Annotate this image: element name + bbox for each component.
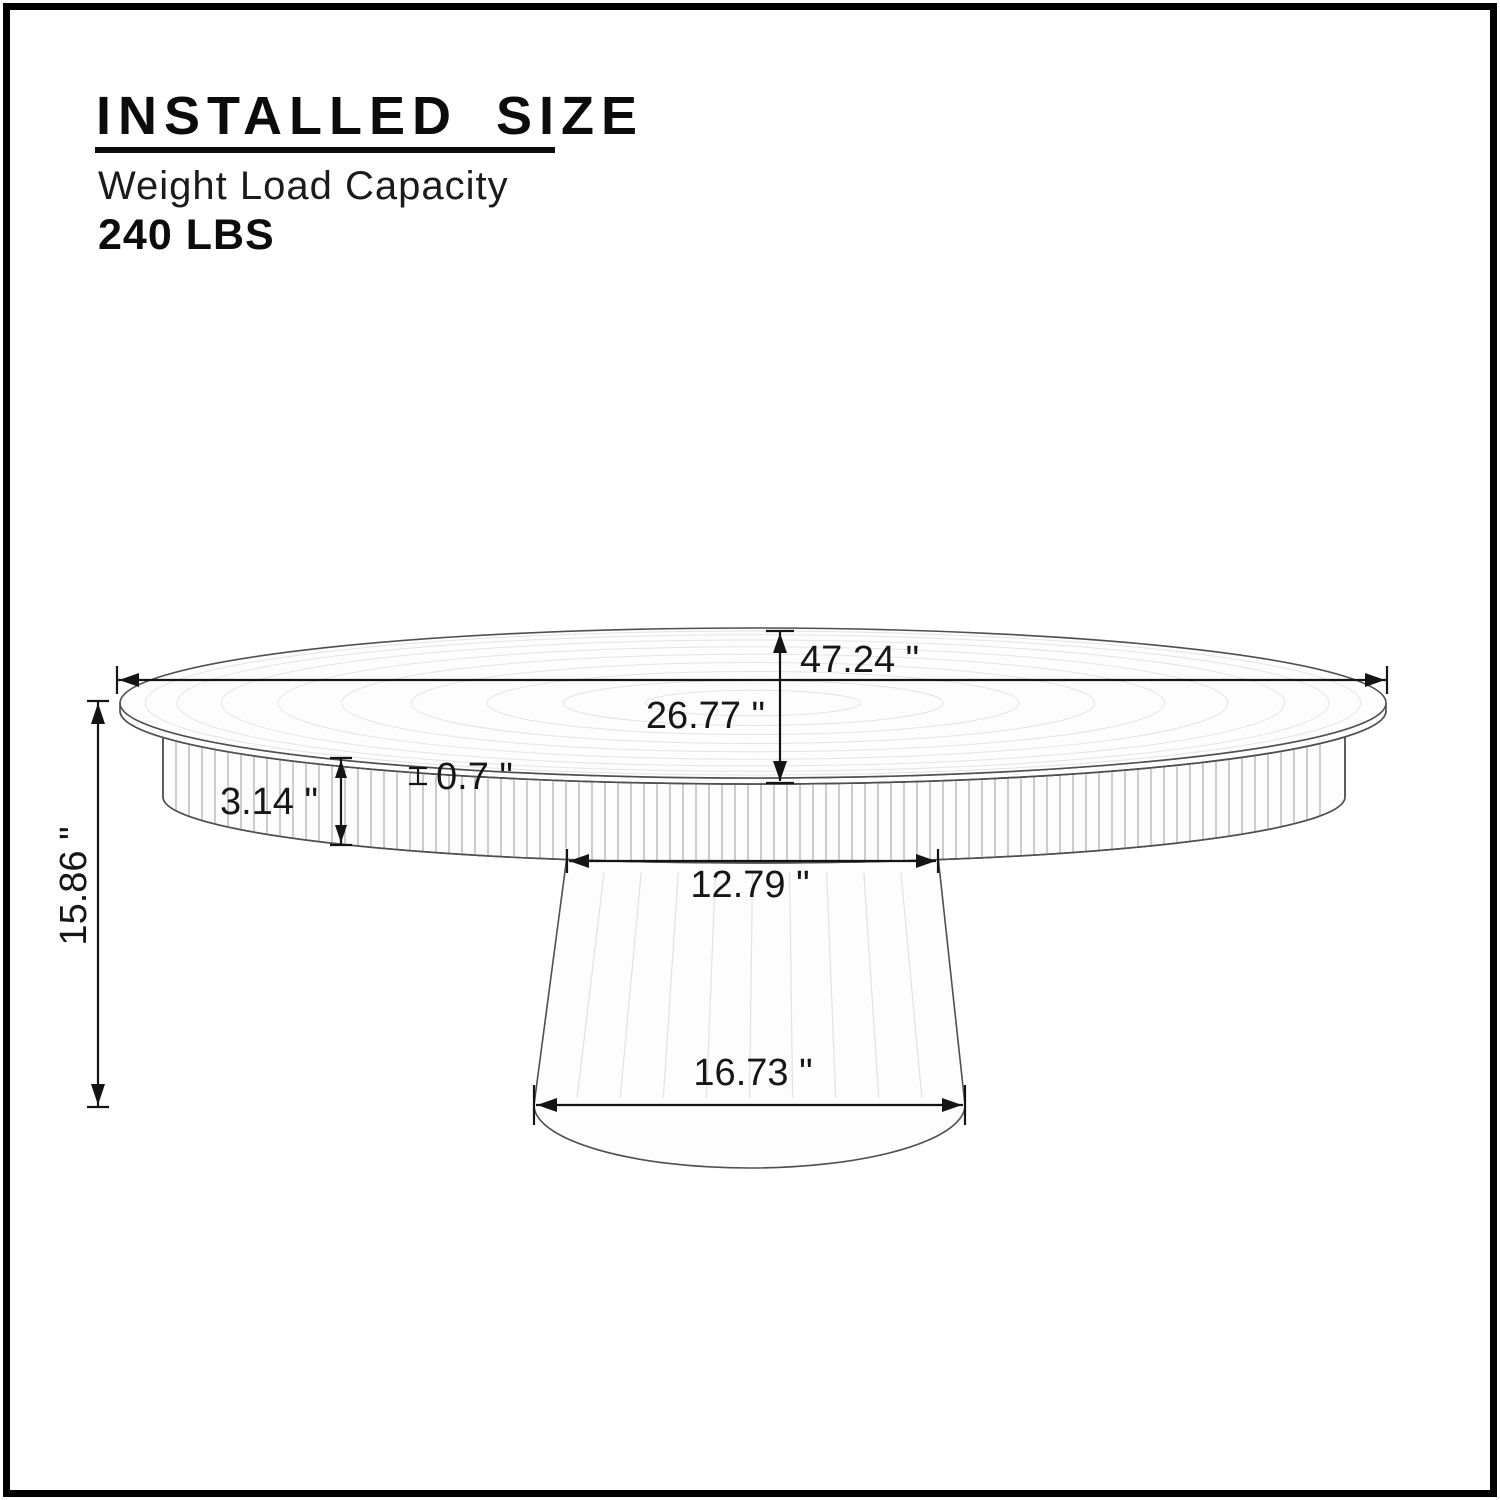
weight-capacity-value: 240 LBS bbox=[98, 211, 275, 259]
dimension-diagram: INSTALLED SIZE Weight Load Capacity 240 … bbox=[0, 0, 1500, 1500]
dim-top-thickness-label: 0.7 " bbox=[436, 756, 513, 798]
dim-top-diameter-label: 47.24 " bbox=[800, 639, 919, 681]
dim-top-depth-label: 26.77 " bbox=[646, 695, 765, 737]
dim-pedestal-top-width-label: 12.79 " bbox=[690, 864, 809, 906]
page-title: INSTALLED SIZE bbox=[96, 86, 644, 146]
dim-pedestal-base-width-label: 16.73 " bbox=[693, 1052, 812, 1094]
dim-overall-height-label: 15.86 " bbox=[53, 826, 95, 945]
dim-apron-height-label: 3.14 " bbox=[220, 781, 318, 823]
dim-overall-height: 15.86 " bbox=[53, 701, 109, 1107]
title-underline bbox=[95, 147, 555, 153]
subtitle: Weight Load Capacity bbox=[98, 164, 509, 208]
installed-size-spec-page: INSTALLED SIZE Weight Load Capacity 240 … bbox=[0, 0, 1500, 1500]
